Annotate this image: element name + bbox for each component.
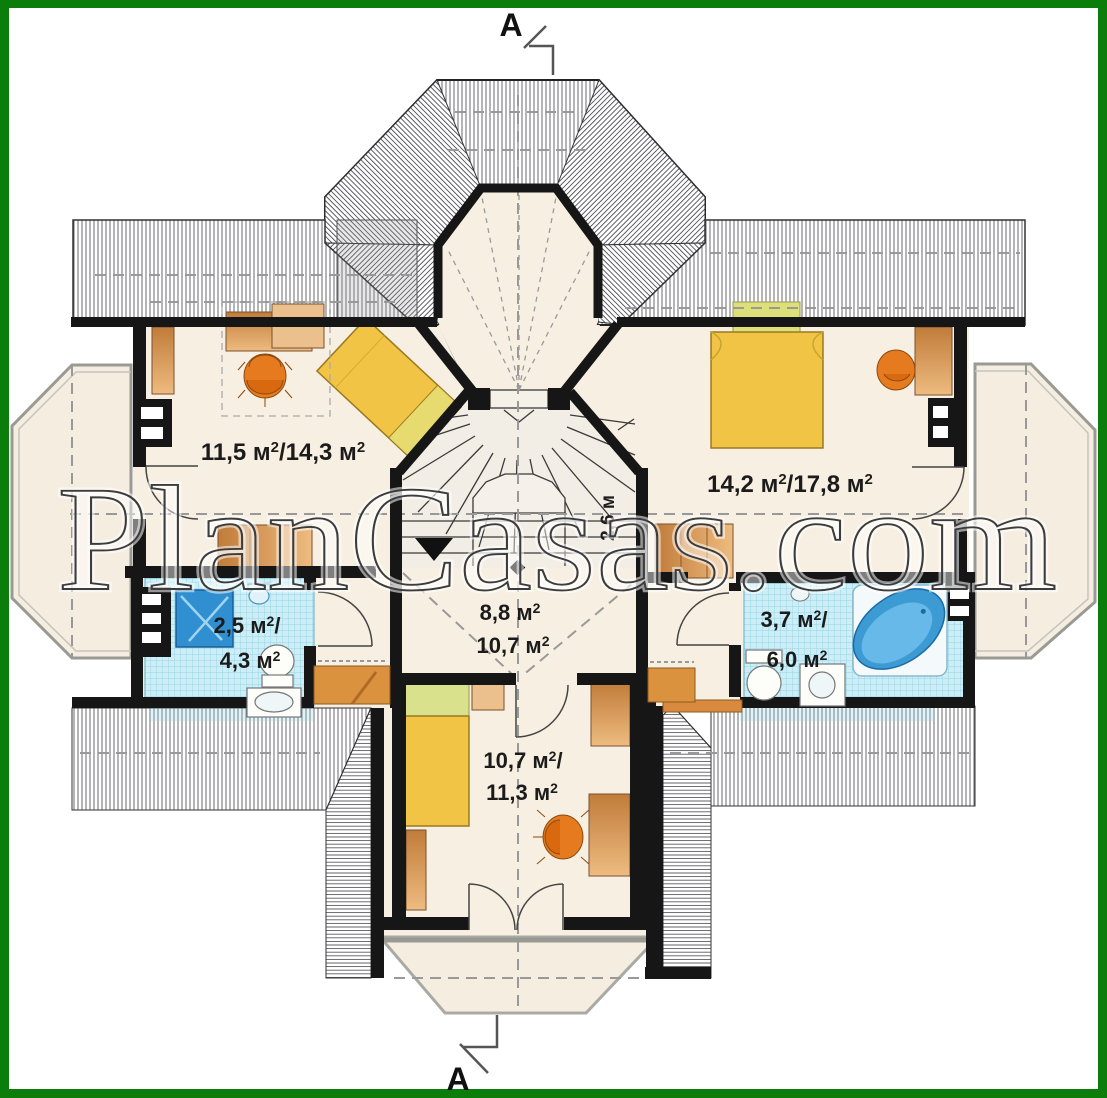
svg-text:PlanCasas.com: PlanCasas.com xyxy=(57,456,1057,622)
svg-text:6,0 м2: 6,0 м2 xyxy=(767,647,828,672)
svg-text:A: A xyxy=(446,1061,469,1097)
svg-text:4,3 м2: 4,3 м2 xyxy=(220,648,281,673)
svg-text:A: A xyxy=(499,7,522,43)
svg-text:10,7 м2: 10,7 м2 xyxy=(476,633,549,658)
svg-text:11,3 м2: 11,3 м2 xyxy=(486,780,558,805)
